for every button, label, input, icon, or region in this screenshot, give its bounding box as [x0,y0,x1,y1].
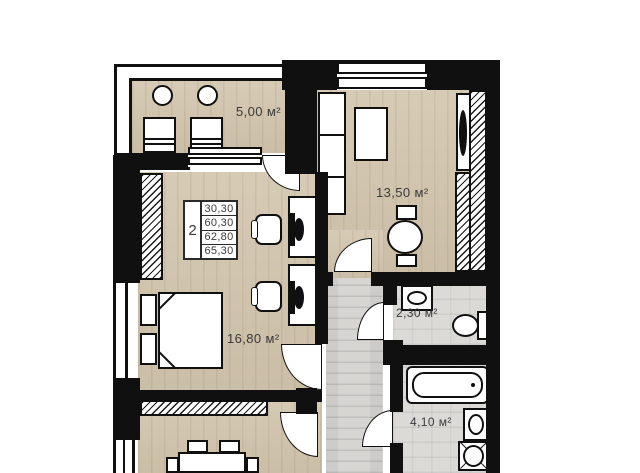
wall-segment [138,390,322,402]
bedroom-chair [396,254,417,267]
legend-area-row: 62,80 [202,231,236,245]
dining-chair [187,440,208,453]
balcony-stool [152,85,173,106]
wall-segment [383,283,397,305]
wall-segment [113,378,140,440]
monitor [290,281,306,314]
balcony-stool [197,85,218,106]
wall-segment [113,155,140,283]
wall-segment [390,443,403,473]
wall-segment [383,340,403,365]
living-room-wardrobe [140,173,163,280]
office-chair [255,281,282,312]
tv [459,110,467,156]
nightstand [140,294,157,326]
nightstand [140,333,157,365]
dining-chair [166,457,179,473]
wall-segment [296,388,317,414]
room-area-label: 5,00 м² [236,104,281,119]
bedroom-chair [396,205,417,220]
room-area-label: 16,80 м² [227,331,280,346]
wall-segment [315,172,328,344]
balcony-railing [114,64,285,67]
bedroom-round-table [387,220,423,254]
washing-machine [458,441,489,471]
office-chair [255,214,282,245]
legend-area-row: 60,30 [202,216,236,230]
monitor [290,213,306,246]
wall-segment [285,78,317,174]
wall-segment [115,153,190,170]
legend-rooms-count: 2 [185,202,202,258]
kitchen-wardrobe [140,400,268,416]
room-area-label: 4,10 м² [410,415,452,429]
balcony-railing [114,64,117,155]
legend-area-row: 30,30 [202,202,236,216]
bedroom-wardrobe [469,90,487,272]
bedroom-window [337,62,427,90]
wall-segment [390,365,403,412]
wall-segment [486,60,500,473]
room-area-label: 13,50 м² [376,185,429,200]
balcony-window [188,147,262,167]
balcony-railing [129,78,132,155]
bathtub [406,366,489,404]
dining-table [178,452,246,473]
balcony-chair [143,117,176,153]
apartment-legend: 2 30,30 60,30 62,80 65,30 [183,200,238,260]
floor-plan: 2 30,30 60,30 62,80 65,30 [0,0,640,473]
wall-segment [390,345,488,365]
dining-chair [246,457,259,473]
living-room-window [113,283,128,378]
living-room-bed [158,292,223,369]
toilet-bowl [452,314,479,337]
balcony-railing [129,78,285,81]
dining-chair [219,440,240,453]
legend-area-row: 65,30 [202,245,236,258]
bedroom-bed [354,107,388,161]
bedroom-wardrobe [455,172,471,272]
room-area-label: 2,30 м² [396,306,438,320]
kitchen-window [113,440,135,473]
